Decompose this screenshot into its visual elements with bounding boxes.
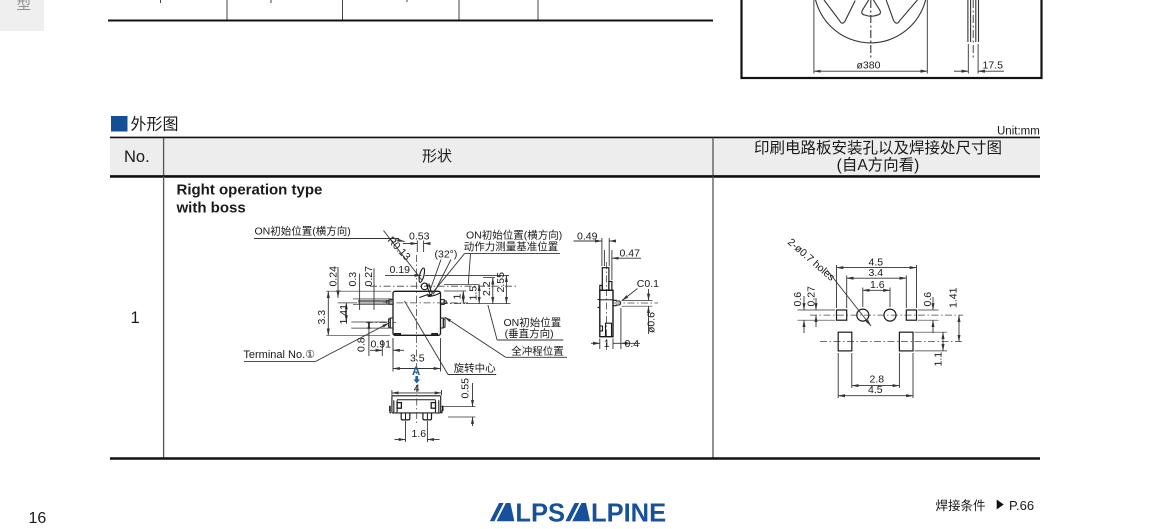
svg-text:17.5: 17.5 bbox=[983, 60, 1004, 72]
svg-text:外形图: 外形图 bbox=[131, 116, 179, 134]
svg-text:动作力测量基准位置: 动作力测量基准位置 bbox=[464, 240, 559, 253]
svg-text:1: 1 bbox=[451, 294, 463, 300]
svg-text:1.41: 1.41 bbox=[338, 304, 350, 325]
svg-text:旋转中心: 旋转中心 bbox=[454, 362, 496, 375]
svg-text:1.6: 1.6 bbox=[870, 279, 885, 291]
svg-text:0.6: 0.6 bbox=[792, 292, 804, 307]
svg-text:焊接条件: 焊接条件 bbox=[936, 498, 986, 513]
svg-text:ø0.6: ø0.6 bbox=[646, 312, 658, 333]
svg-text:1.41: 1.41 bbox=[948, 287, 960, 308]
svg-text:Terminal No.①: Terminal No.① bbox=[243, 349, 315, 361]
svg-text:ON初始位置(横方向): ON初始位置(横方向) bbox=[255, 225, 351, 238]
svg-text:0.24: 0.24 bbox=[328, 266, 340, 287]
svg-text:(自A方向看): (自A方向看) bbox=[837, 156, 920, 174]
svg-text:16: 16 bbox=[29, 510, 47, 527]
svg-text:全冲程位置: 全冲程位置 bbox=[511, 345, 564, 358]
svg-text:LPINE: LPINE bbox=[591, 499, 666, 527]
svg-text:P.66: P.66 bbox=[1009, 498, 1034, 513]
svg-text:0.27: 0.27 bbox=[363, 266, 375, 287]
svg-text:0.53: 0.53 bbox=[409, 231, 430, 243]
svg-text:型: 型 bbox=[17, 0, 32, 14]
svg-text:Unit:mm: Unit:mm bbox=[997, 126, 1040, 138]
svg-text:0.55: 0.55 bbox=[460, 378, 472, 399]
svg-text:LPS: LPS bbox=[515, 499, 565, 527]
svg-text:C0.1: C0.1 bbox=[637, 278, 659, 290]
svg-text:3.3: 3.3 bbox=[316, 310, 328, 325]
svg-text:形状: 形状 bbox=[422, 148, 452, 165]
svg-text:1.6: 1.6 bbox=[412, 428, 427, 440]
svg-text:1: 1 bbox=[604, 338, 610, 350]
svg-text:No.: No. bbox=[124, 148, 150, 166]
svg-text:0.3: 0.3 bbox=[347, 272, 359, 287]
svg-text:0.49: 0.49 bbox=[577, 231, 598, 243]
svg-text:ø380: ø380 bbox=[857, 60, 881, 72]
svg-text:ON初始位置(横方向): ON初始位置(横方向) bbox=[466, 229, 562, 242]
svg-text:印刷电路板安装孔以及焊接处尺寸图: 印刷电路板安装孔以及焊接处尺寸图 bbox=[754, 139, 1002, 157]
svg-text:3.4: 3.4 bbox=[869, 267, 884, 279]
svg-text:1: 1 bbox=[131, 309, 140, 327]
svg-text:2.55: 2.55 bbox=[495, 272, 507, 293]
svg-text:2.2: 2.2 bbox=[481, 281, 493, 296]
svg-text:(垂直方向): (垂直方向) bbox=[505, 327, 554, 340]
svg-text:0.19: 0.19 bbox=[390, 264, 411, 276]
svg-text:Right operation type: Right operation type bbox=[177, 182, 323, 199]
svg-text:0.47: 0.47 bbox=[620, 248, 641, 260]
svg-text:3.5: 3.5 bbox=[410, 353, 425, 365]
svg-text:0.27: 0.27 bbox=[806, 286, 818, 307]
svg-text:0.4: 0.4 bbox=[625, 338, 640, 350]
svg-text:0.6: 0.6 bbox=[922, 292, 934, 307]
svg-text:4.5: 4.5 bbox=[868, 384, 883, 396]
svg-text:1.1: 1.1 bbox=[932, 352, 944, 367]
svg-text:0.91: 0.91 bbox=[371, 339, 392, 351]
svg-text:(32°): (32°) bbox=[435, 249, 458, 261]
svg-text:1.5: 1.5 bbox=[468, 286, 480, 301]
svg-text:with boss: with boss bbox=[176, 200, 246, 217]
svg-text:4: 4 bbox=[414, 383, 420, 395]
